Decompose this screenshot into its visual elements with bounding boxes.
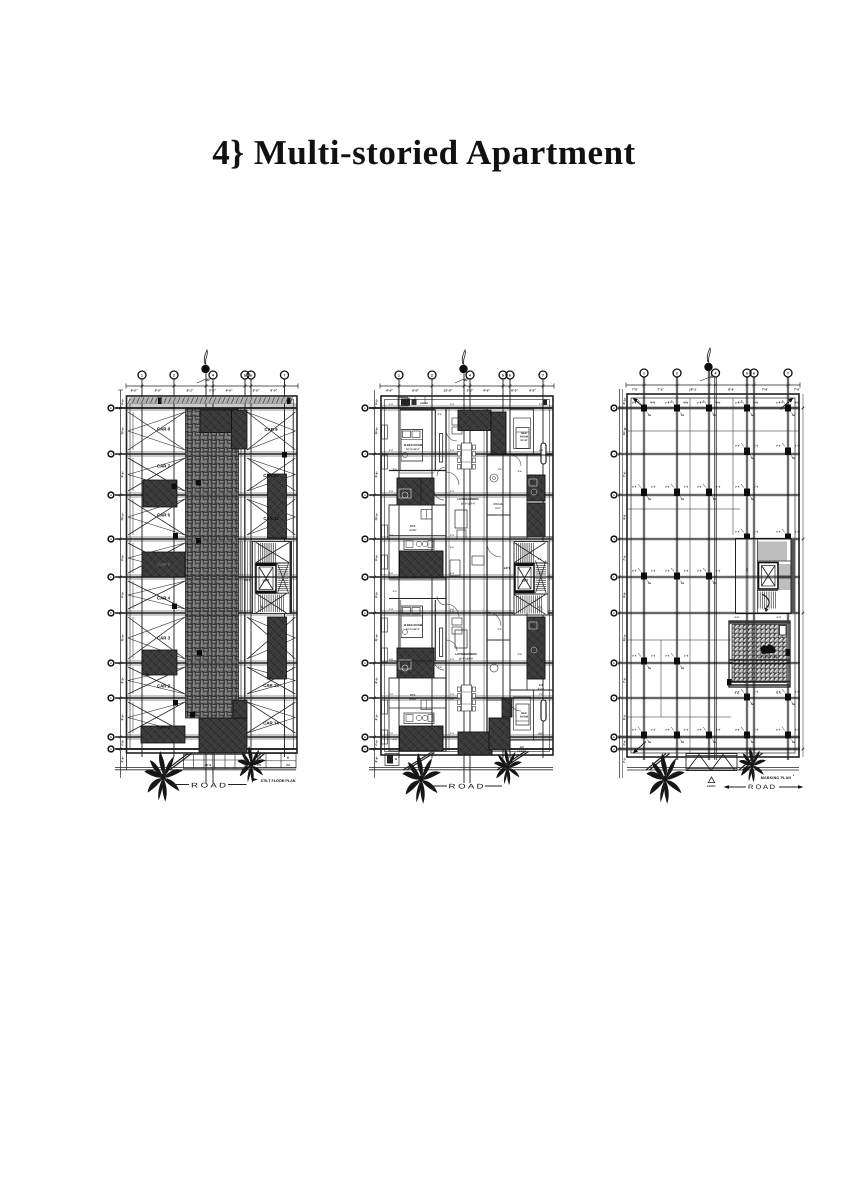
svg-text:1'-6´: 1'-6´ [651, 402, 656, 405]
svg-text:ROOM: ROOM [520, 716, 528, 719]
svg-text:3'-6´: 3'-6´ [393, 468, 398, 471]
svg-text:F: F [613, 576, 615, 579]
svg-text:2'6: 2'6 [286, 763, 290, 767]
svg-text:2'-0´: 2'-0´ [697, 729, 702, 732]
svg-text:2'-0´: 2'-0´ [697, 570, 702, 573]
svg-text:1'-6´: 1'-6´ [651, 486, 656, 489]
svg-text:CAR 10: CAR 10 [263, 473, 279, 478]
svg-text:2'-6": 2'-6" [120, 739, 125, 746]
svg-text:7: 7 [542, 374, 544, 378]
svg-text:2'-0´: 2'-0´ [665, 729, 670, 732]
svg-text:1'-6´: 1'-6´ [651, 729, 656, 732]
svg-text:12'-0´x20'-0´: 12'-0´x20'-0´ [459, 658, 474, 661]
svg-text:2´-0´: 2´-0´ [776, 692, 781, 695]
svg-text:10'-6": 10'-6" [374, 426, 379, 435]
svg-text:1: 1 [643, 372, 645, 376]
svg-text:1: 1 [141, 374, 143, 378]
svg-text:5'-2": 5'-2" [209, 389, 216, 393]
svg-text:12'-0´x20'-0´: 12'-0´x20'-0´ [461, 503, 476, 506]
svg-text:G: G [364, 538, 366, 541]
svg-text:CAR 7: CAR 7 [157, 464, 171, 469]
svg-text:D: D [364, 662, 366, 665]
svg-text:1'-6´: 1'-6´ [684, 402, 689, 405]
svg-text:1'-6´: 1'-6´ [754, 729, 759, 732]
svg-text:10'x12': 10'x12' [520, 439, 528, 442]
svg-text:KIT.: KIT. [410, 693, 416, 697]
svg-text:2'-0´: 2'-0´ [665, 570, 670, 573]
svg-text:CAR 1: CAR 1 [157, 725, 171, 730]
svg-text:2'-0: 2'-0 [450, 403, 454, 406]
svg-text:8'-0": 8'-0" [412, 389, 419, 393]
svg-text:R O A D: R O A D [449, 784, 484, 791]
svg-text:8'-0": 8'-0" [374, 591, 379, 598]
svg-text:4'-6": 4'-6" [482, 389, 490, 393]
svg-text:C: C [613, 697, 615, 700]
svg-text:2'-0´: 2'-0´ [632, 402, 637, 405]
svg-text:U.G WATER TANK: U.G WATER TANK [758, 656, 779, 659]
svg-text:8'-0": 8'-0" [374, 676, 379, 683]
svg-text:5 B: 5 B [257, 756, 261, 760]
svg-text:6: 6 [250, 374, 252, 378]
svg-text:J: J [613, 453, 615, 456]
svg-text:7: 7 [284, 374, 286, 378]
svg-text:2'-0: 2'-0 [389, 572, 393, 575]
svg-text:2: 2 [676, 372, 678, 376]
svg-text:2'-0´: 2'-0´ [665, 402, 670, 405]
svg-text:15'-1´: 15'-1´ [689, 388, 698, 392]
svg-text:2'-0: 2'-0 [450, 572, 454, 575]
svg-text:A/C: A/C [520, 746, 525, 749]
svg-text:1: 1 [398, 374, 400, 378]
svg-text:J: J [364, 453, 366, 456]
svg-text:CAR 2: CAR 2 [157, 684, 171, 689]
svg-text:8'-0": 8'-0" [511, 389, 518, 393]
svg-text:2'-0´: 2'-0´ [632, 486, 637, 489]
svg-text:4'-0": 4'-0" [269, 389, 277, 393]
svg-text:8'-6´: 8'-6´ [728, 388, 735, 392]
svg-text:2'-0: 2'-0 [389, 608, 393, 611]
svg-text:MARKING PLAN: MARKING PLAN [761, 776, 792, 780]
svg-text:1'-6´: 1'-6´ [716, 486, 721, 489]
svg-text:1'-6´: 1'-6´ [684, 486, 689, 489]
svg-text:1'-6´: 1'-6´ [795, 402, 800, 405]
svg-text:6: 6 [509, 374, 511, 378]
svg-text:3'-6´: 3'-6´ [450, 610, 455, 613]
svg-text:LOBBY: LOBBY [420, 402, 429, 405]
svg-text:CAR 13: CAR 13 [263, 683, 279, 688]
svg-text:C: C [110, 697, 112, 700]
svg-text:10'-6": 10'-6" [120, 426, 125, 435]
svg-text:2: 2 [431, 374, 433, 378]
svg-text:8'-6": 8'-6" [374, 554, 379, 561]
svg-text:8'-0": 8'-0" [155, 389, 162, 393]
svg-text:8'x10': 8'x10' [409, 529, 416, 532]
svg-text:2'-0´: 2'-0´ [776, 729, 781, 732]
svg-text:CAR 11: CAR 11 [263, 516, 279, 521]
svg-text:J: J [110, 453, 112, 456]
svg-text:8'-1": 8'-1" [187, 389, 194, 393]
svg-text:2'-0´: 2'-0´ [735, 402, 740, 405]
svg-text:D: D [613, 662, 615, 665]
svg-text:5'-6": 5'-6" [374, 398, 379, 405]
svg-text:1'-6´: 1'-6´ [795, 729, 800, 732]
svg-text:3'-6´: 3'-6´ [518, 470, 523, 473]
svg-text:9'-0": 9'-0" [120, 713, 125, 720]
svg-text:A: A [613, 748, 615, 751]
svg-text:CAR 8: CAR 8 [157, 427, 171, 432]
svg-text:B: B [364, 736, 366, 739]
svg-text:3'-6´: 3'-6´ [498, 416, 503, 419]
svg-text:1'-6´: 1'-6´ [754, 445, 759, 448]
svg-text:F: F [364, 576, 366, 579]
svg-text:1'-6´: 1'-6´ [716, 402, 721, 405]
svg-text:4: 4 [793, 774, 795, 777]
svg-text:K: K [364, 407, 366, 410]
svg-text:4: 4 [212, 374, 214, 378]
svg-text:2'-0: 2'-0 [450, 449, 454, 452]
svg-text:3'-6´: 3'-6´ [393, 590, 398, 593]
svg-text:F: F [110, 576, 112, 579]
svg-text:3'-6´: 3'-6´ [518, 653, 523, 656]
svg-text:8'-0": 8'-0" [120, 676, 125, 683]
svg-text:KIT: KIT [539, 684, 544, 687]
svg-text:C: C [364, 697, 366, 700]
svg-text:2'-0: 2'-0 [389, 403, 393, 406]
svg-text:H: H [364, 494, 366, 497]
svg-text:11'-6": 11'-6" [374, 633, 379, 642]
svg-text:4: 4 [715, 372, 717, 376]
svg-text:D: D [110, 662, 112, 665]
svg-text:LIFT: LIFT [263, 579, 270, 583]
svg-text:ENTRY: ENTRY [707, 785, 716, 788]
svg-text:LEDGE: LEDGE [518, 750, 527, 753]
svg-text:8'x10': 8'x10' [409, 698, 416, 701]
svg-text:CAR 14: CAR 14 [263, 721, 279, 726]
svg-text:3'-6´: 3'-6´ [450, 698, 455, 701]
svg-text:5: 5 [746, 372, 748, 376]
svg-text:CAR 3: CAR 3 [157, 636, 171, 641]
svg-text:2'-0: 2'-0 [450, 658, 454, 661]
svg-text:20'-6: 20'-6 [205, 763, 212, 767]
svg-text:3'-6´: 3'-6´ [538, 606, 543, 609]
svg-text:E: E [110, 612, 112, 615]
svg-text:8'-0": 8'-0" [253, 389, 260, 393]
svg-text:K: K [110, 407, 112, 410]
svg-text:1´-6´: 1´-6´ [734, 616, 739, 619]
svg-text:1'-6´: 1'-6´ [795, 691, 800, 694]
svg-text:2'-0´: 2'-0´ [632, 655, 637, 658]
svg-text:2'-0´: 2'-0´ [735, 531, 740, 534]
svg-text:K: K [613, 407, 615, 410]
svg-text:5: 5 [502, 374, 504, 378]
svg-text:LIFT: LIFT [244, 578, 250, 582]
svg-text:2'-0: 2'-0 [450, 534, 454, 537]
svg-text:9'-6": 9'-6" [374, 470, 379, 477]
svg-text:5'-2": 5'-2" [467, 389, 474, 393]
svg-text:CAR 4: CAR 4 [157, 596, 171, 601]
svg-text:R O A D: R O A D [748, 784, 775, 791]
svg-text:3'-6´: 3'-6´ [538, 733, 543, 736]
svg-text:1'-6´: 1'-6´ [754, 531, 759, 534]
svg-text:CAR 5: CAR 5 [157, 562, 171, 567]
svg-text:LIFT: LIFT [522, 579, 529, 583]
svg-text:1´-6´: 1´-6´ [734, 692, 739, 695]
svg-text:B: B [110, 736, 112, 739]
svg-text:E: E [364, 612, 366, 615]
svg-text:2'-0: 2'-0 [450, 693, 454, 696]
svg-text:2'-6": 2'-6" [374, 739, 379, 746]
svg-text:1'-6´: 1'-6´ [651, 655, 656, 658]
svg-text:3'-6´: 3'-6´ [498, 468, 503, 471]
svg-text:B: B [287, 756, 289, 760]
svg-text:7'-6´: 7'-6´ [657, 388, 664, 392]
svg-text:7'-6´: 7'-6´ [794, 388, 801, 392]
svg-text:4: 4 [469, 374, 471, 378]
svg-text:KIT.: KIT. [410, 524, 416, 528]
svg-text:2'-0´: 2'-0´ [632, 570, 637, 573]
svg-text:10'-0": 10'-0" [374, 512, 379, 521]
svg-text:A: A [110, 748, 112, 751]
svg-text:7'-6´: 7'-6´ [762, 388, 769, 392]
svg-text:M.BED ROOM: M.BED ROOM [404, 623, 423, 627]
svg-text:2'-0: 2'-0 [389, 693, 393, 696]
svg-text:5'-6": 5'-6" [120, 398, 125, 405]
svg-text:2'-0´: 2'-0´ [632, 729, 637, 732]
svg-text:E: E [613, 612, 615, 615]
svg-text:2'-0´: 2'-0´ [735, 729, 740, 732]
svg-text:G: G [613, 538, 615, 541]
svg-text:POOJA: POOJA [493, 503, 502, 506]
svg-text:B: B [613, 736, 615, 739]
svg-text:LIVING/DINING: LIVING/DINING [457, 497, 479, 501]
svg-text:CAR 9: CAR 9 [264, 427, 278, 432]
svg-text:2'-0´: 2'-0´ [735, 445, 740, 448]
svg-text:M.BED ROOM: M.BED ROOM [404, 443, 423, 447]
svg-text:4'-6": 4'-6" [528, 389, 536, 393]
svg-text:40': 40' [205, 378, 211, 382]
svg-text:10'-0": 10'-0" [444, 389, 453, 393]
svg-text:9'-0": 9'-0" [374, 713, 379, 720]
svg-text:W: W [395, 758, 398, 761]
svg-text:2'-0: 2'-0 [389, 732, 393, 735]
svg-text:2'-0: 2'-0 [450, 732, 454, 735]
svg-text:2´-0´: 2´-0´ [776, 616, 781, 619]
svg-text:1'-6´: 1'-6´ [684, 570, 689, 573]
svg-text:CAR 6: CAR 6 [157, 513, 171, 518]
svg-text:2'-0´: 2'-0´ [665, 486, 670, 489]
svg-text:1'-6´: 1'-6´ [795, 531, 800, 534]
svg-text:LIVING/DINING: LIVING/DINING [455, 652, 477, 656]
svg-text:G: G [110, 538, 112, 541]
svg-text:1'-6´: 1'-6´ [684, 729, 689, 732]
svg-text:1'-6´: 1'-6´ [754, 402, 759, 405]
svg-text:7'-2´: 7'-2´ [622, 757, 627, 763]
svg-text:10'-0´x12'-0´: 10'-0´x12'-0´ [406, 448, 420, 451]
svg-text:1'-6´: 1'-6´ [754, 691, 759, 694]
svg-text:4'-6": 4'-6" [385, 389, 393, 393]
svg-text:3'-6´: 3'-6´ [438, 666, 443, 669]
svg-text:40': 40' [463, 378, 469, 382]
svg-text:8'-6": 8'-6" [120, 554, 125, 561]
svg-text:2'-0: 2'-0 [389, 490, 393, 493]
svg-text:2'-0´: 2'-0´ [735, 486, 740, 489]
svg-text:2: 2 [173, 374, 175, 378]
svg-text:1'-6´: 1'-6´ [716, 729, 721, 732]
svg-text:2'-0: 2'-0 [389, 449, 393, 452]
svg-text:7'-6´: 7'-6´ [632, 388, 639, 392]
svg-text:1'-6´: 1'-6´ [684, 655, 689, 658]
svg-text:H: H [110, 494, 112, 497]
svg-text:10'-0´x12'-0´: 10'-0´x12'-0´ [406, 628, 420, 631]
svg-text:5: 5 [244, 374, 246, 378]
svg-text:9'-6": 9'-6" [120, 470, 125, 477]
svg-text:6: 6 [753, 372, 755, 376]
svg-text:6'x7': 6'x7' [495, 507, 501, 510]
svg-text:2'-0´: 2'-0´ [697, 486, 702, 489]
svg-text:2'-0´: 2'-0´ [776, 531, 781, 534]
svg-text:2'-0´: 2'-0´ [776, 445, 781, 448]
svg-text:LIFT: LIFT [504, 566, 510, 570]
svg-text:11'-6": 11'-6" [120, 633, 125, 642]
svg-text:2'-0´: 2'-0´ [776, 402, 781, 405]
svg-text:8'-0": 8'-0" [120, 591, 125, 598]
svg-text:3'-6´: 3'-6´ [498, 628, 503, 631]
svg-text:H: H [613, 494, 615, 497]
svg-text:2'-0´: 2'-0´ [665, 655, 670, 658]
svg-text:R O A D: R O A D [191, 783, 226, 790]
svg-text:4'-6": 4'-6" [225, 389, 233, 393]
svg-text:1'-6´: 1'-6´ [716, 570, 721, 573]
svg-text:3'-6´: 3'-6´ [538, 558, 543, 561]
svg-text:1'-6´: 1'-6´ [795, 445, 800, 448]
svg-text:5'-6": 5'-6" [374, 755, 379, 762]
svg-text:1'-6´: 1'-6´ [651, 570, 656, 573]
svg-text:7: 7 [787, 372, 789, 376]
svg-text:10'-0": 10'-0" [120, 512, 125, 521]
svg-text:A: A [364, 748, 366, 751]
svg-text:4'-0": 4'-0" [130, 389, 138, 393]
svg-text:3'-6´: 3'-6´ [438, 413, 443, 416]
svg-text:ROOM: ROOM [520, 436, 528, 439]
svg-text:2'-0´: 2'-0´ [697, 402, 702, 405]
svg-text:2'-0: 2'-0 [450, 490, 454, 493]
svg-text:STILT FLOOR PLAN: STILT FLOOR PLAN [261, 779, 296, 783]
svg-text:1'-6´: 1'-6´ [754, 486, 759, 489]
svg-text:3'-6´: 3'-6´ [393, 738, 398, 741]
svg-text:3'-6´: 3'-6´ [450, 546, 455, 549]
svg-text:5'-6": 5'-6" [120, 755, 125, 762]
